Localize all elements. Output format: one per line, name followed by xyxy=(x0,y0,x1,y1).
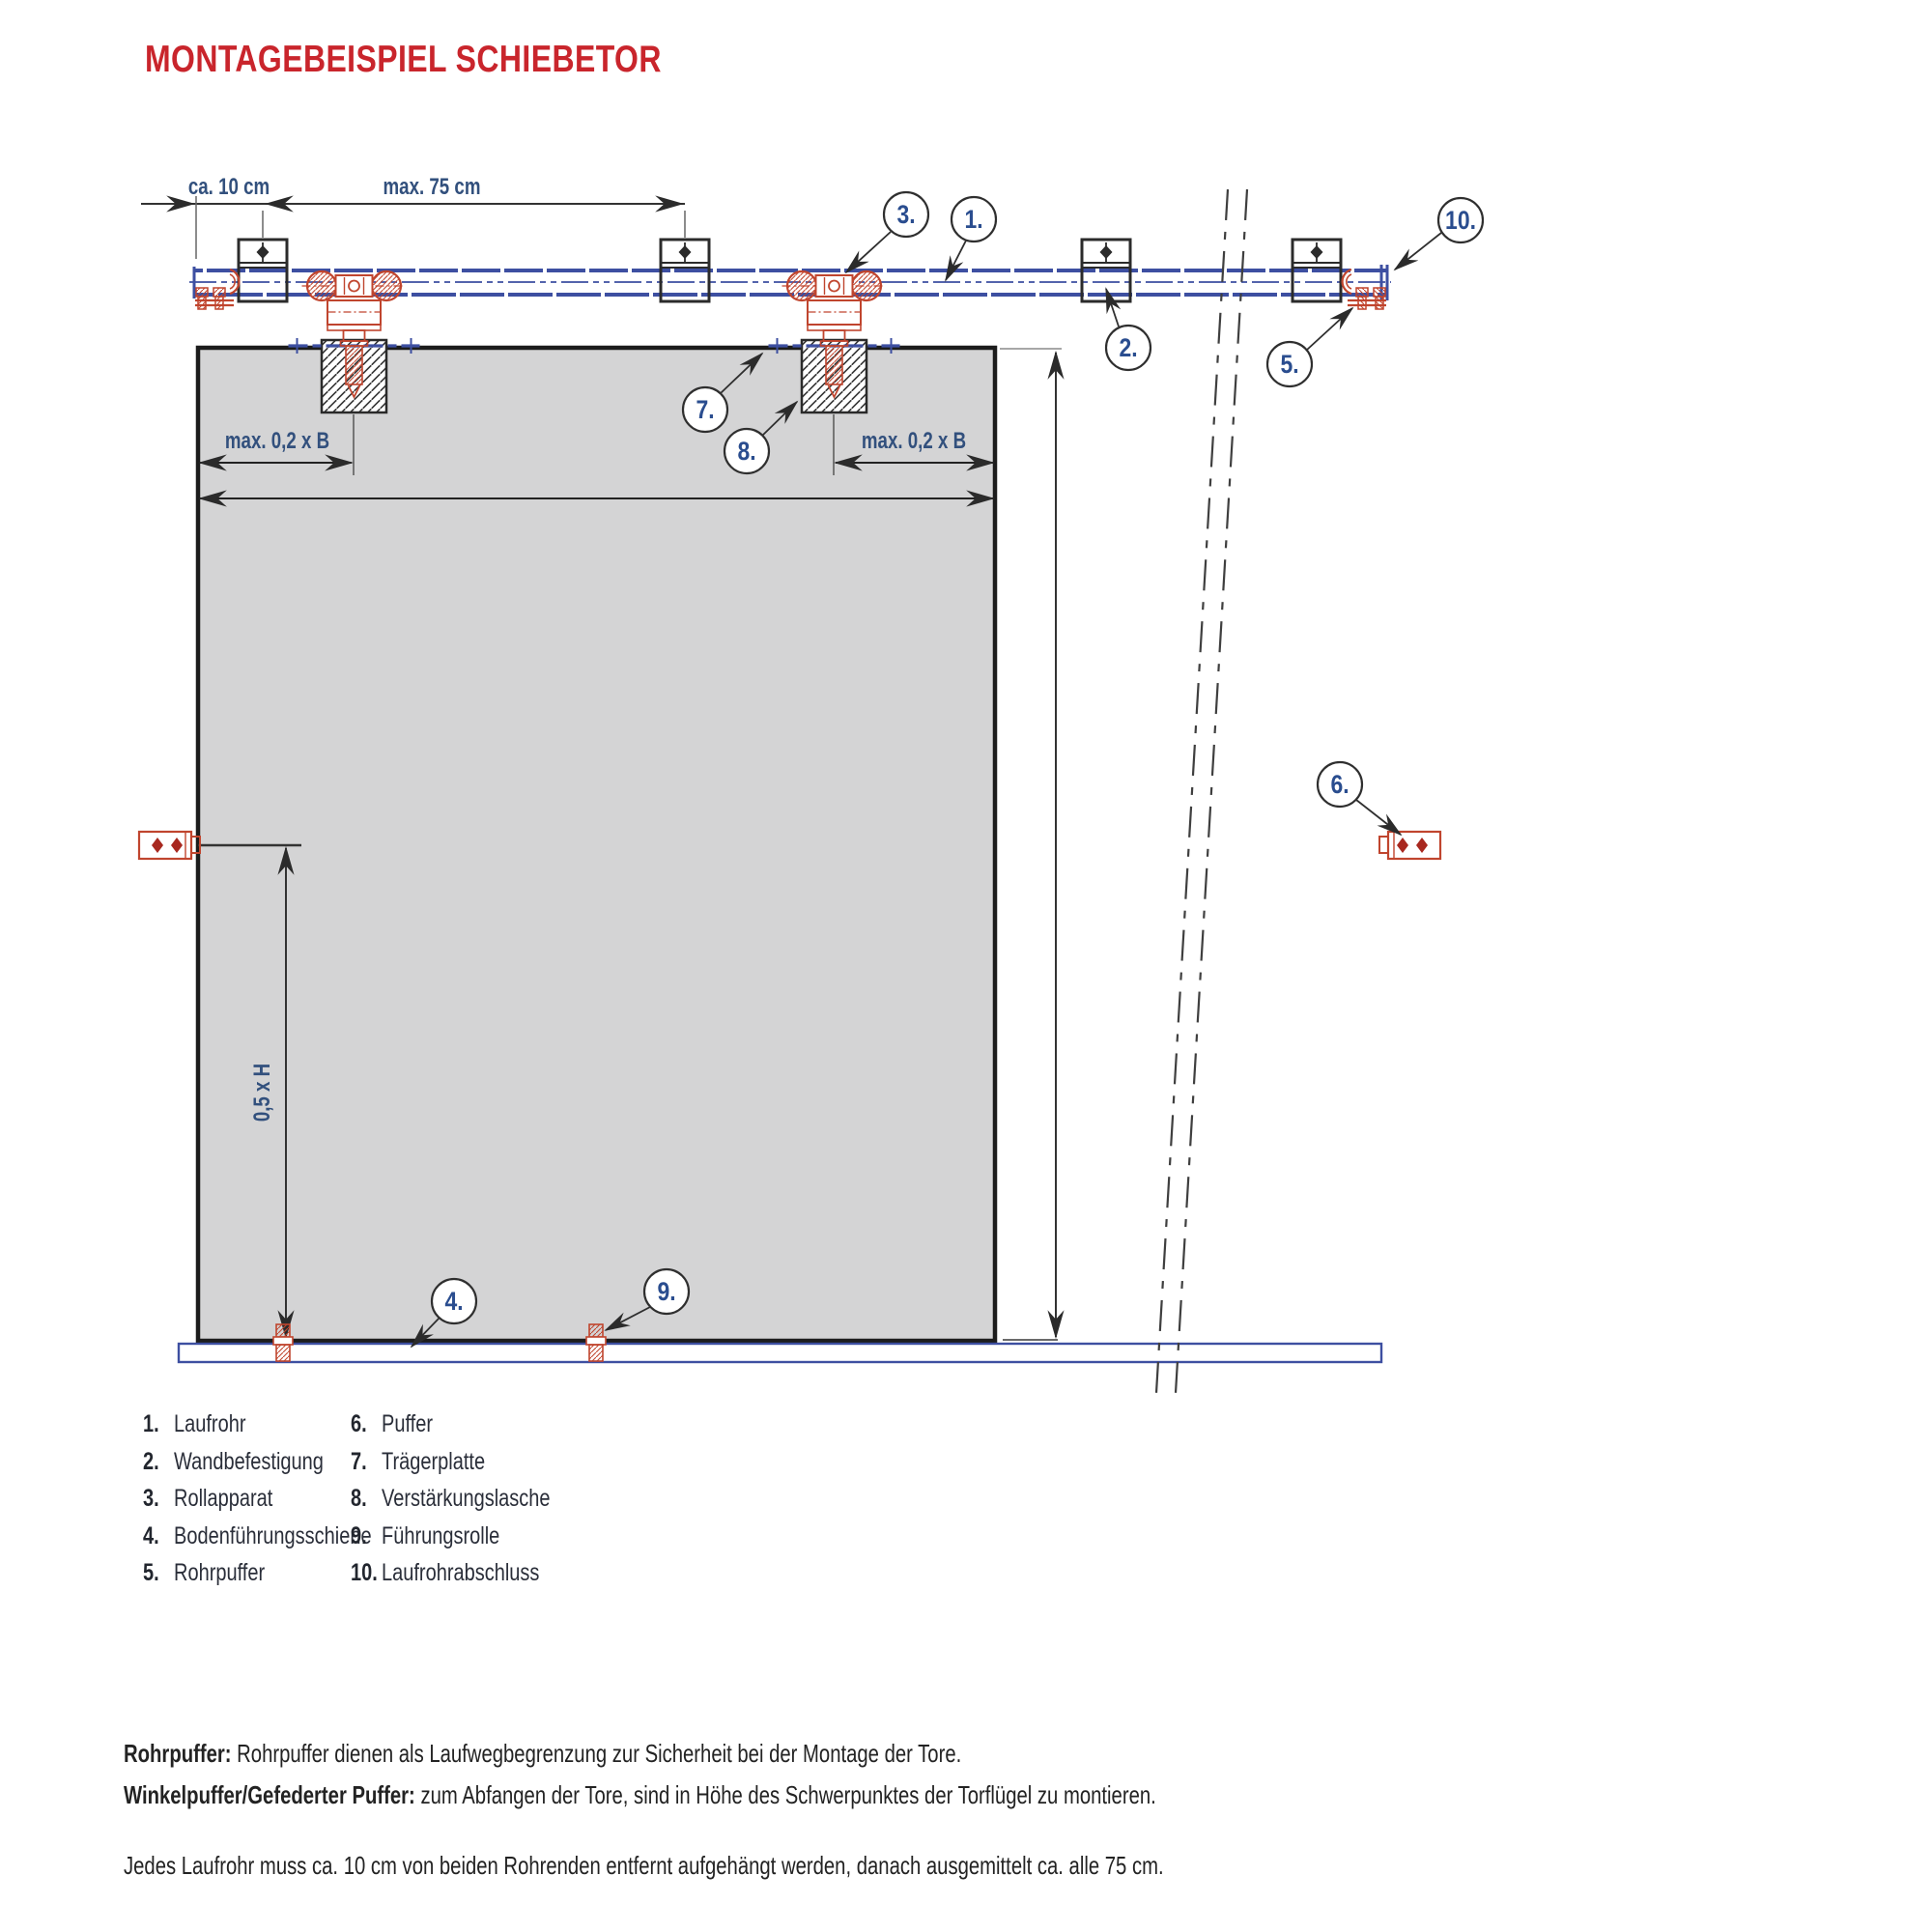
legend-label: Laufrohrabschluss xyxy=(382,1559,539,1586)
legend-label: Führungsrolle xyxy=(382,1522,499,1549)
callout-8-label: 8. xyxy=(737,437,755,466)
callout-5: 5. xyxy=(1267,308,1352,386)
legend-item: 9.Führungsrolle xyxy=(351,1518,551,1555)
note-rohrpuffer: Rohrpuffer: Rohrpuffer dienen als Laufwe… xyxy=(124,1739,961,1769)
dim-label-10cm: ca. 10 cm xyxy=(188,174,270,200)
legend-num: 5. xyxy=(143,1554,174,1592)
note-lead: Winkelpuffer/Gefederter Puffer: xyxy=(124,1780,415,1809)
fuehrungsrolle-1 xyxy=(273,1324,293,1361)
rohrpuffer-right xyxy=(1343,270,1386,309)
dim-gate-height xyxy=(1000,349,1062,1340)
legend-item: 3.Rollapparat xyxy=(143,1480,372,1518)
wall-centerlines xyxy=(1156,189,1247,1393)
legend-item: 10.Laufrohrabschluss xyxy=(351,1554,551,1592)
legend-num: 4. xyxy=(143,1518,174,1555)
legend-item: 6.Puffer xyxy=(351,1406,551,1443)
callout-3-label: 3. xyxy=(896,200,915,229)
dim-label-02b-right: max. 0,2 x B xyxy=(862,428,966,454)
dim-label-half-height: 0,5 x H xyxy=(249,1064,275,1122)
legend-item: 1.Laufrohr xyxy=(143,1406,372,1443)
note-lead: Rohrpuffer: xyxy=(124,1739,232,1768)
legend-item: 2.Wandbefestigung xyxy=(143,1443,372,1481)
puffer-free xyxy=(1379,832,1440,859)
callout-6-label: 6. xyxy=(1330,770,1349,799)
footnote: Jedes Laufrohr muss ca. 10 cm von beiden… xyxy=(124,1851,1164,1881)
legend-label: Wandbefestigung xyxy=(174,1448,324,1475)
legend-column-1: 1.Laufrohr 2.Wandbefestigung 3.Rollappar… xyxy=(143,1406,372,1592)
callout-7-label: 7. xyxy=(696,395,714,424)
legend-item: 7.Trägerplatte xyxy=(351,1443,551,1481)
bodenfuehrungsschiene xyxy=(179,1344,1381,1362)
legend-num: 8. xyxy=(351,1480,382,1518)
legend-num: 6. xyxy=(351,1406,382,1443)
dim-label-02b-left: max. 0,2 x B xyxy=(225,428,329,454)
legend-num: 10. xyxy=(351,1554,382,1592)
callout-6: 6. xyxy=(1318,762,1401,835)
legend-num: 3. xyxy=(143,1480,174,1518)
callout-5-label: 5. xyxy=(1280,350,1298,379)
note-text: zum Abfangen der Tore, sind in Höhe des … xyxy=(415,1780,1156,1809)
document-page: MONTAGEBEISPIEL SCHIEBETOR xyxy=(0,0,1932,1932)
callout-9-label: 9. xyxy=(657,1277,675,1306)
note-winkelpuffer: Winkelpuffer/Gefederter Puffer: zum Abfa… xyxy=(124,1780,1156,1810)
legend-item: 4.Bodenführungsschiene xyxy=(143,1518,372,1555)
callout-2-label: 2. xyxy=(1119,333,1137,362)
top-dimension: ca. 10 cm max. 75 cm xyxy=(141,174,685,259)
callout-10: 10. xyxy=(1395,198,1483,270)
note-text: Rohrpuffer dienen als Laufwegbegrenzung … xyxy=(232,1739,962,1768)
legend-label: Bodenführungsschiene xyxy=(174,1522,372,1549)
legend-label: Puffer xyxy=(382,1410,433,1437)
legend-label: Verstärkungslasche xyxy=(382,1485,551,1512)
callout-1: 1. xyxy=(946,197,996,280)
callout-4-label: 4. xyxy=(444,1287,463,1316)
legend-num: 9. xyxy=(351,1518,382,1555)
callout-3: 3. xyxy=(846,192,928,272)
assembly-drawing: ca. 10 cm max. 75 cm max. 0,2 x B max. 0… xyxy=(0,0,1932,1932)
legend-label: Laufrohr xyxy=(174,1410,246,1437)
legend-num: 1. xyxy=(143,1406,174,1443)
legend-item: 5.Rohrpuffer xyxy=(143,1554,372,1592)
callout-1-label: 1. xyxy=(964,205,982,234)
gate-leaf xyxy=(198,348,995,1341)
dim-label-75cm: max. 75 cm xyxy=(384,174,481,200)
legend-label: Rohrpuffer xyxy=(174,1559,265,1586)
legend-num: 7. xyxy=(351,1443,382,1481)
fuehrungsrolle-2 xyxy=(586,1324,606,1361)
legend-label: Trägerplatte xyxy=(382,1448,485,1475)
puffer-on-gate xyxy=(139,832,200,859)
callout-10-label: 10. xyxy=(1445,206,1476,235)
rohrpuffer-left xyxy=(195,270,239,309)
legend-item: 8.Verstärkungslasche xyxy=(351,1480,551,1518)
legend-label: Rollapparat xyxy=(174,1485,272,1512)
legend-column-2: 6.Puffer 7.Trägerplatte 8.Verstärkungsla… xyxy=(351,1406,551,1592)
legend-num: 2. xyxy=(143,1443,174,1481)
